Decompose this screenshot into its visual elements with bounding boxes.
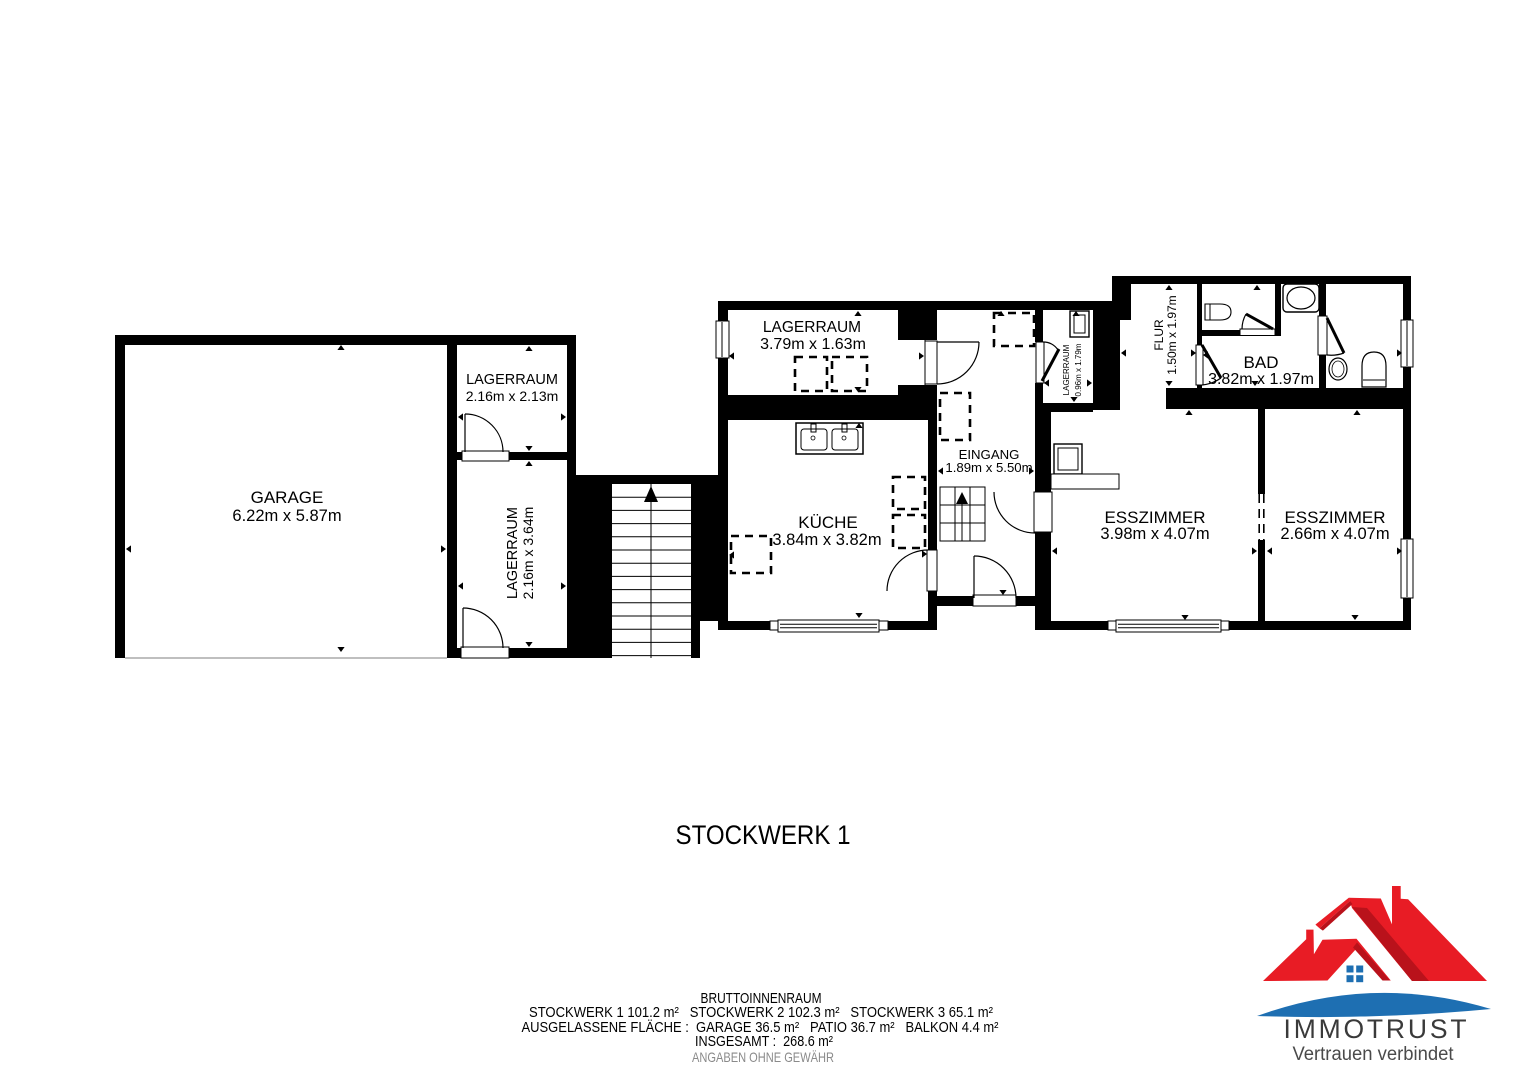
svg-text:LAGERRAUM: LAGERRAUM [1062,344,1071,395]
svg-text:3.84m x 3.82m: 3.84m x 3.82m [772,531,881,549]
svg-text:BAD: BAD [1244,353,1279,372]
svg-text:Vertrauen verbindet: Vertrauen verbindet [1293,1044,1455,1065]
svg-text:2.66m x 4.07m: 2.66m x 4.07m [1280,525,1389,543]
svg-text:3.82m x 1.97m: 3.82m x 1.97m [1208,371,1314,388]
svg-text:3.98m x 4.07m: 3.98m x 4.07m [1100,525,1209,543]
svg-text:1.50m x 1.97m: 1.50m x 1.97m [1165,295,1179,374]
svg-text:LAGERRAUM: LAGERRAUM [466,372,558,388]
svg-text:2.16m x 3.64m: 2.16m x 3.64m [520,507,536,600]
svg-text:ANGABEN OHNE GEWÄHR: ANGABEN OHNE GEWÄHR [692,1049,834,1065]
svg-text:GARAGE: GARAGE [251,488,324,507]
svg-text:KÜCHE: KÜCHE [798,513,858,532]
svg-text:0.96m x 1.79m: 0.96m x 1.79m [1074,343,1083,396]
svg-text:IMMOTRUST: IMMOTRUST [1284,1014,1467,1044]
svg-text:1.89m x 5.50m: 1.89m x 5.50m [945,460,1032,475]
svg-text:STOCKWERK 1 101.2 m² STOCKWE: STOCKWERK 1 101.2 m² STOCKWERK 2 102.3 m… [529,1005,993,1021]
svg-text:3.79m x 1.63m: 3.79m x 1.63m [760,336,866,353]
svg-text:LAGERRAUM: LAGERRAUM [505,507,521,599]
svg-text:STOCKWERK 1: STOCKWERK 1 [676,820,851,850]
svg-text:INSGESAMT : 268.6 m²: INSGESAMT : 268.6 m² [695,1034,833,1050]
svg-text:2.16m x 2.13m: 2.16m x 2.13m [466,388,559,404]
svg-text:6.22m x 5.87m: 6.22m x 5.87m [232,507,341,525]
svg-text:FLUR: FLUR [1152,319,1166,351]
svg-text:LAGERRAUM: LAGERRAUM [763,319,861,336]
